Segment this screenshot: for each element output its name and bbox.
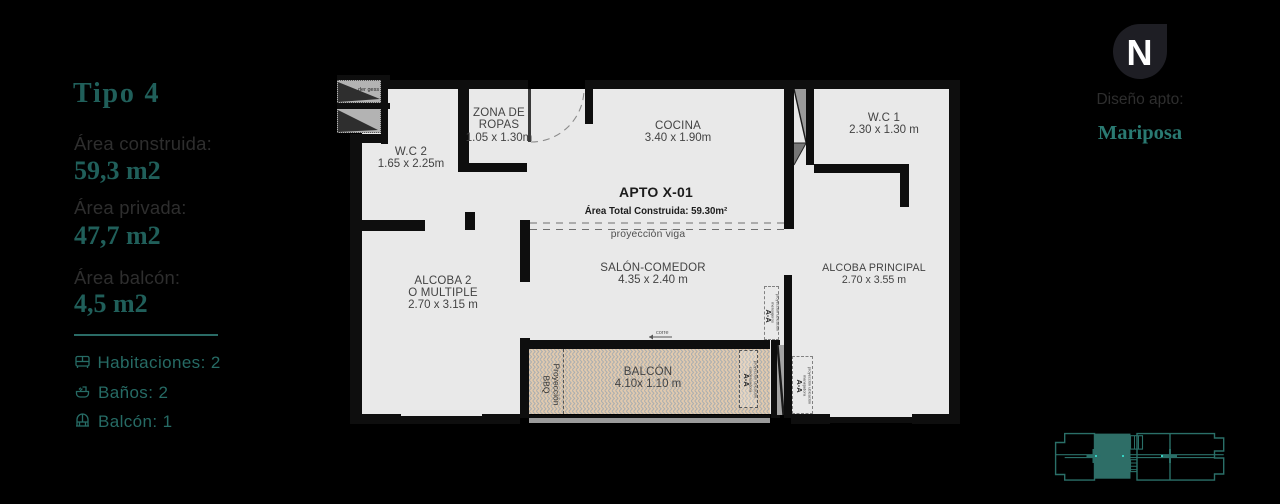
svg-text:der gess: der gess: [358, 87, 379, 93]
svg-text:corre: corre: [656, 330, 669, 336]
